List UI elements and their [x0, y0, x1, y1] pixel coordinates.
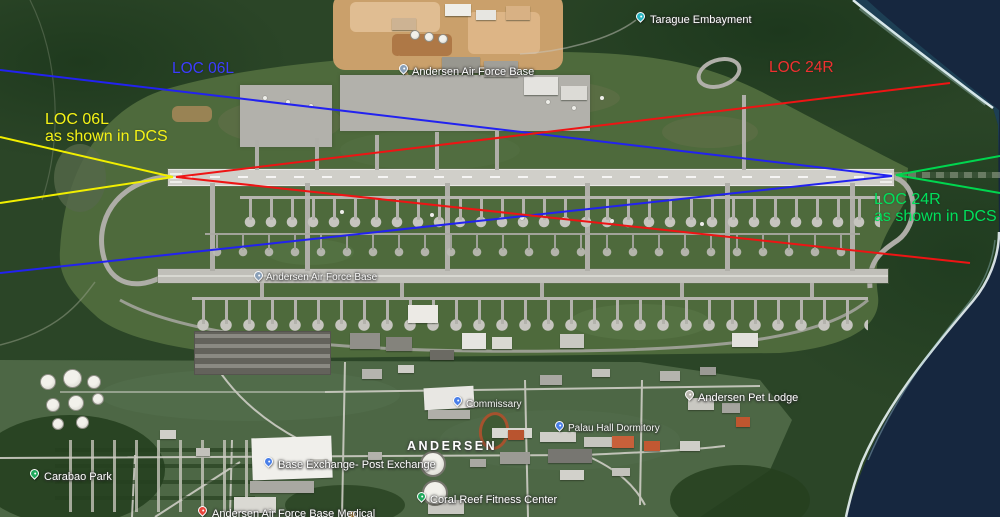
- loc24r-real-upper-line: [176, 83, 950, 177]
- loc24r-real-caption-line: LOC 24R: [769, 60, 834, 77]
- andersen-district-label[interactable]: ANDERSEN: [407, 439, 497, 453]
- andersen-medical-label[interactable]: Andersen Air Force Base Medical: [212, 508, 375, 517]
- satellite-map[interactable]: Tarague EmbaymentAndersen Air Force Base…: [0, 0, 1000, 517]
- loc06l-dcs-caption-line: as shown in DCS: [45, 128, 168, 145]
- loc06l-dcs-caption: LOC 06Las shown in DCS: [45, 111, 168, 146]
- loc24r-dcs-caption: LOC 24Ras shown in DCS: [874, 191, 997, 226]
- andersen-afb-north-label[interactable]: Andersen Air Force Base: [412, 66, 534, 78]
- loc24r-real-lower-line: [176, 177, 970, 263]
- coral-reef-fitness-label[interactable]: Coral Reef Fitness Center: [430, 494, 557, 506]
- loc06l-dcs-caption-line: LOC 06L: [45, 111, 168, 128]
- loc24r-dcs-upper-line: [896, 156, 1000, 175]
- loc06l-real-caption-line: LOC 06L: [172, 61, 234, 78]
- carabao-park-label[interactable]: Carabao Park: [44, 471, 112, 483]
- andersen-afb-field-label[interactable]: Andersen Air Force Base: [266, 272, 377, 283]
- loc06l-dcs-lower-line: [0, 177, 173, 203]
- tarague-embayment-label[interactable]: Tarague Embayment: [650, 14, 752, 26]
- andersen-pet-lodge-label[interactable]: Andersen Pet Lodge: [698, 392, 798, 404]
- loc06l-real-caption: LOC 06L: [172, 61, 234, 78]
- loc24r-dcs-caption-line: as shown in DCS: [874, 208, 997, 225]
- loc06l-real-lower-line: [0, 176, 892, 273]
- base-exchange-label[interactable]: Base Exchange- Post Exchange: [278, 459, 436, 471]
- loc24r-real-caption: LOC 24R: [769, 60, 834, 77]
- loc24r-dcs-caption-line: LOC 24R: [874, 191, 997, 208]
- commissary-label[interactable]: Commissary: [466, 399, 522, 410]
- palau-hall-dormitory-label[interactable]: Palau Hall Dormitory: [568, 423, 660, 434]
